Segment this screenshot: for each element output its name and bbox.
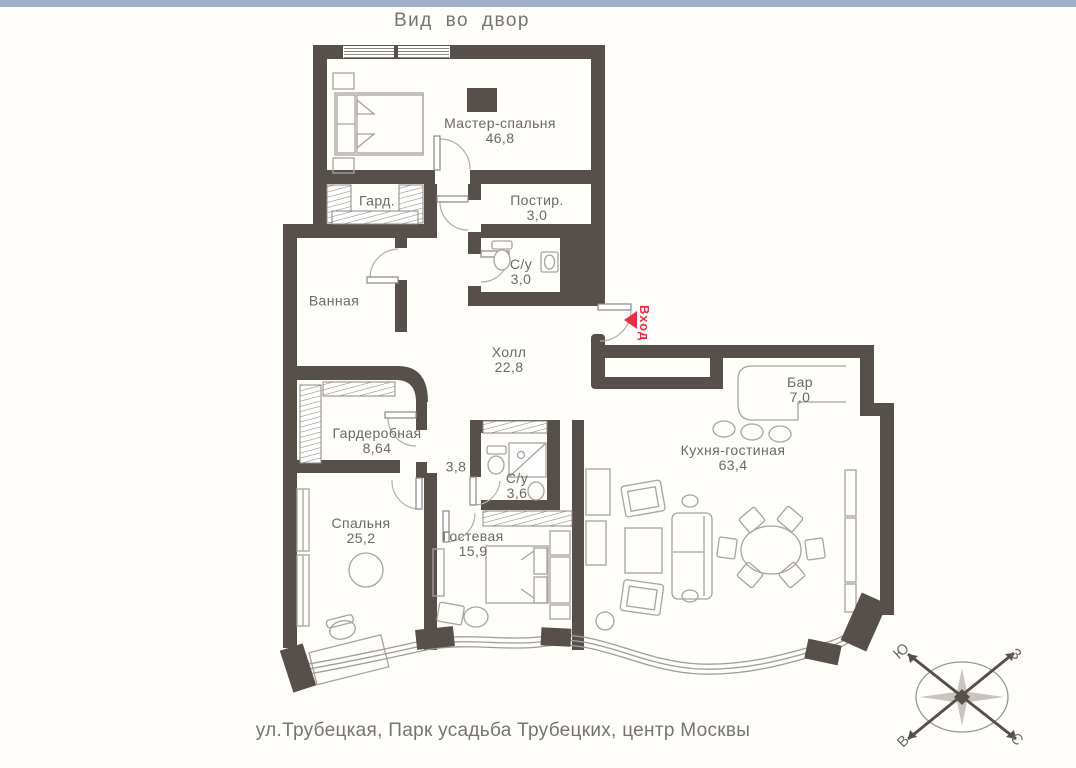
room-label-master-bedroom: Мастер-спальня46,8 [444, 116, 556, 146]
door-bathroom [367, 249, 398, 283]
bar-counter [713, 366, 846, 442]
walls [283, 45, 894, 650]
master-bed [333, 73, 423, 173]
master-window [343, 46, 450, 58]
toilet-lower-icon [487, 446, 506, 474]
sink-lower-icon [528, 482, 544, 500]
compass-west-label: З [1007, 645, 1025, 664]
floor-plan-page: Ю З В С Вид во двор Мастер-спальня46,8 Г… [0, 0, 1076, 768]
sofa [672, 513, 712, 599]
room-label-dressing-room: Гардеробная8,64 [332, 426, 421, 456]
view-title: Вид во двор [394, 10, 530, 32]
room-label-hall: Холл22,8 [492, 345, 527, 375]
room-label-bathroom: Ванная [309, 294, 359, 309]
room-label-kitchen-living: Кухня-гостиная63,4 [681, 443, 786, 473]
address-caption: ул.Трубецкая, Парк усадьба Трубецких, це… [256, 720, 750, 742]
room-label-wc-upper: С/у3,0 [510, 257, 532, 287]
room-label-guest-room: Гостевая15,9 [442, 529, 503, 559]
dining-set [717, 506, 826, 589]
kitchen-window-strip [845, 470, 856, 612]
room-label-bedroom: Спальня25,2 [331, 516, 390, 546]
room-label-closet: Гард. [359, 194, 395, 209]
room-label-laundry: Постир.3,0 [510, 193, 564, 223]
sink-upper-icon [541, 252, 558, 272]
entrance-label: Вход [637, 305, 652, 341]
room-label-bar: Бар7,0 [787, 375, 813, 405]
compass-rose: Ю З В С [890, 640, 1027, 751]
door-laundry [437, 196, 468, 230]
room-label-corridor: 3,8 [446, 460, 467, 475]
living-room-furniture [586, 469, 712, 630]
door-bedroom [392, 478, 422, 509]
room-label-wc-lower: С/у3,6 [506, 471, 528, 501]
